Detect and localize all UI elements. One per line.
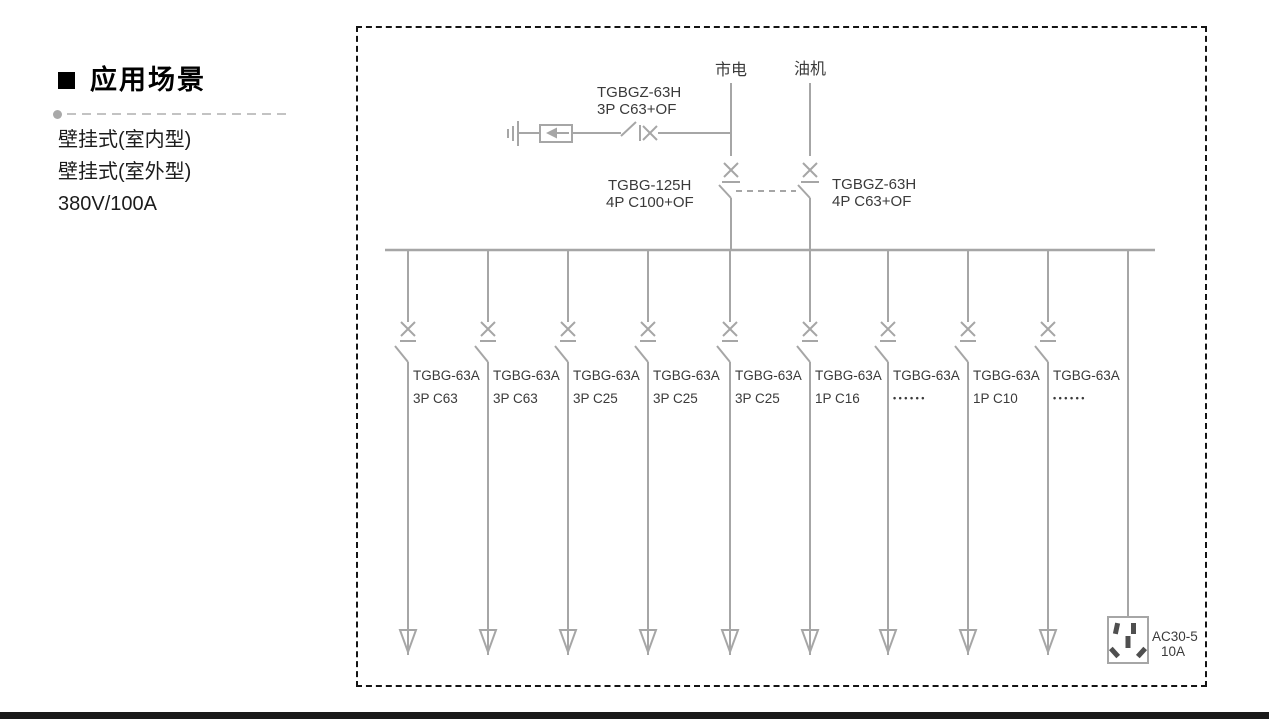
switch-blade-icon xyxy=(395,346,408,362)
spd-switch-blade-icon xyxy=(621,122,636,136)
ground-icon xyxy=(508,121,518,146)
bottom-divider-bar xyxy=(0,712,1269,719)
feeder-branch-1 xyxy=(395,251,416,655)
switch-blade-icon xyxy=(1035,346,1048,362)
mains-switch-blade-icon xyxy=(719,185,731,198)
spd-breaker-rating-label: 3P C63+OF xyxy=(597,101,676,118)
breaker-x-icon xyxy=(401,322,415,336)
mains-source-label: 市电 xyxy=(715,61,747,79)
generator-incomer xyxy=(798,83,819,250)
branch-5-rating-label: 3P C25 xyxy=(735,391,780,406)
branch-1-rating-label: 3P C63 xyxy=(413,391,458,406)
breaker-x-icon xyxy=(723,322,737,336)
feeder-branch-3 xyxy=(555,251,576,655)
branch-4-model-label: TGBG-63A xyxy=(653,368,720,383)
single-line-diagram: 市电 油机 TGBGZ-63H 3P C63+OF TGBG-125H 4P C… xyxy=(0,0,1269,721)
branch-2-model-label: TGBG-63A xyxy=(493,368,560,383)
switch-blade-icon xyxy=(955,346,968,362)
feeder-branch-6 xyxy=(797,251,818,655)
gen-breaker-x-icon xyxy=(803,163,817,177)
switch-blade-icon xyxy=(635,346,648,362)
switch-blade-icon xyxy=(475,346,488,362)
feeder-branch-7 xyxy=(875,251,896,655)
switch-blade-icon xyxy=(717,346,730,362)
branch-4-rating-label: 3P C25 xyxy=(653,391,698,406)
mains-incomer xyxy=(719,83,740,250)
gen-breaker-rating-label: 4P C63+OF xyxy=(832,193,911,210)
mains-breaker-x-icon xyxy=(724,163,738,177)
breaker-x-icon xyxy=(1041,322,1055,336)
branch-7-model-label: TGBG-63A xyxy=(893,368,960,383)
branch-7-rating-label: •••••• xyxy=(893,393,927,403)
branch-6-rating-label: 1P C16 xyxy=(815,391,860,406)
branch-9-rating-label: •••••• xyxy=(1053,393,1087,403)
branch-2-rating-label: 3P C63 xyxy=(493,391,538,406)
spd-branch xyxy=(508,121,731,146)
switch-blade-icon xyxy=(875,346,888,362)
spd-breaker-x-icon xyxy=(643,126,657,140)
gen-switch-blade-icon xyxy=(798,185,810,198)
socket-feeder xyxy=(1108,251,1148,663)
breaker-x-icon xyxy=(961,322,975,336)
switch-blade-icon xyxy=(555,346,568,362)
breaker-x-icon xyxy=(481,322,495,336)
feeder-branch-4 xyxy=(635,251,656,655)
switch-blade-icon xyxy=(797,346,810,362)
breaker-x-icon xyxy=(641,322,655,336)
branch-3-model-label: TGBG-63A xyxy=(573,368,640,383)
branch-5-model-label: TGBG-63A xyxy=(735,368,802,383)
breaker-x-icon xyxy=(561,322,575,336)
branch-3-rating-label: 3P C25 xyxy=(573,391,618,406)
socket-model-label: AC30-5 xyxy=(1152,629,1198,644)
feeder-branch-5 xyxy=(717,251,738,655)
spd-breaker-model-label: TGBGZ-63H xyxy=(597,84,681,101)
branch-8-model-label: TGBG-63A xyxy=(973,368,1040,383)
breaker-x-icon xyxy=(803,322,817,336)
mains-breaker-model-label: TGBG-125H xyxy=(608,177,691,194)
breaker-x-icon xyxy=(881,322,895,336)
branch-1-model-label: TGBG-63A xyxy=(413,368,480,383)
branch-9-model-label: TGBG-63A xyxy=(1053,368,1120,383)
mains-breaker-rating-label: 4P C100+OF xyxy=(606,194,694,211)
generator-source-label: 油机 xyxy=(794,60,826,78)
feeder-branch-8 xyxy=(955,251,976,655)
feeder-branch-9 xyxy=(1035,251,1056,655)
branch-6-model-label: TGBG-63A xyxy=(815,368,882,383)
feeder-branch-2 xyxy=(475,251,496,655)
product-diagram-page: 应用场景 壁挂式(室内型) 壁挂式(室外型) 380V/100A xyxy=(0,0,1269,721)
socket-rating-label: 10A xyxy=(1161,644,1185,659)
branch-8-rating-label: 1P C10 xyxy=(973,391,1018,406)
gen-breaker-model-label: TGBGZ-63H xyxy=(832,176,916,193)
